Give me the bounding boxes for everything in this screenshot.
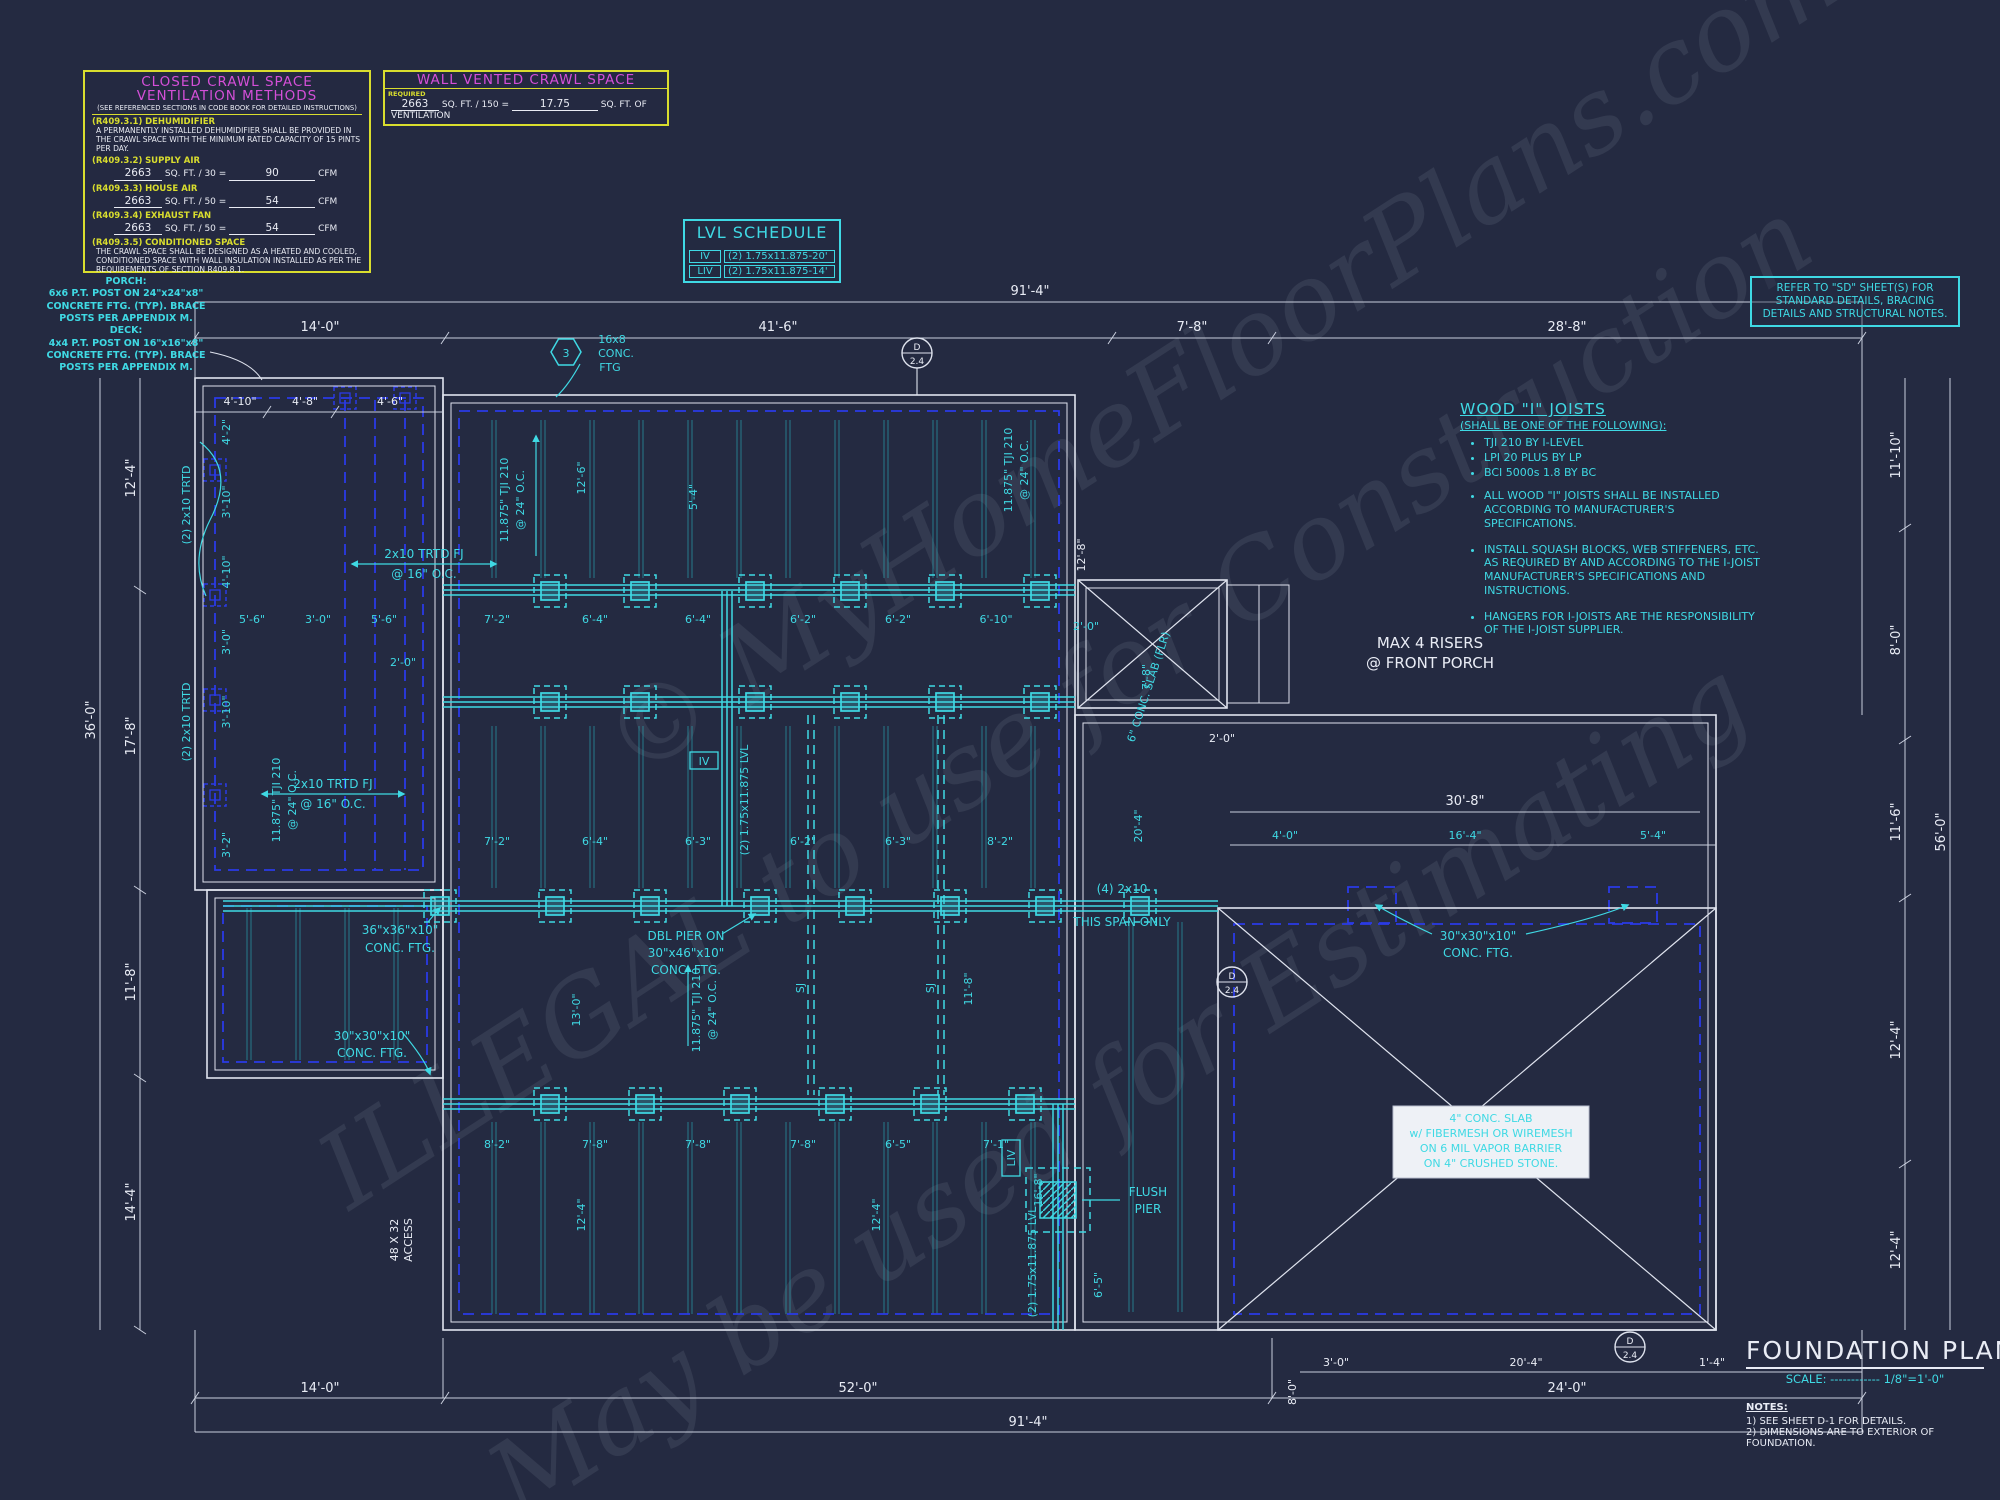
dim-right-4: 12'-4": [1889, 1020, 1904, 1059]
svg-text:2.4: 2.4: [1623, 1351, 1638, 1361]
deck-note-line: 4x4 P.T. POST ON 16"x16"x8": [28, 338, 224, 350]
dim-b1-6: 6'-10": [979, 613, 1012, 626]
lvl-desc: (2) 1.75x11.875-20': [724, 250, 835, 263]
dim-topleft-1: 4'-10": [223, 395, 256, 408]
porch-deck-notes: PORCH: 6x6 P.T. POST ON 24"x24"x8" CONCR…: [28, 276, 224, 375]
wood-joists-title: WOOD "I" JOISTS: [1460, 400, 1770, 419]
svg-text:CONC.: CONC.: [598, 347, 634, 360]
lvl-mark: IV: [689, 250, 721, 263]
dim-left-1: 12'-4": [124, 458, 139, 497]
hex-number: 3: [563, 347, 570, 360]
dim-right-5: 12'-4": [1889, 1230, 1904, 1269]
svg-text:@ 16" O.C.: @ 16" O.C.: [391, 567, 456, 581]
svg-text:2.4: 2.4: [910, 357, 925, 367]
dim-b3-2: 7'-8": [582, 1138, 608, 1151]
dim-bot-1: 14'-0": [300, 1381, 339, 1396]
svg-text:D: D: [1229, 972, 1236, 982]
sheet-notes: NOTES: 1) SEE SHEET D-1 FOR DETAILS. 2) …: [1746, 1402, 1984, 1449]
svg-text:30"x30"x10": 30"x30"x10": [1440, 929, 1517, 943]
svg-text:FTG: FTG: [599, 361, 620, 374]
dim-left-3: 11'-8": [124, 962, 139, 1001]
dim-b2-3: 6'-3": [685, 835, 711, 848]
dim-right-overall: 56'-0": [1934, 812, 1949, 851]
dim-v-4: 20'-4": [1132, 809, 1145, 842]
dim-v-6: 12'-4": [575, 1198, 588, 1231]
dim-left-overall: 36'-0": [84, 700, 99, 739]
crawl-box-header: CLOSED CRAWL SPACE VENTILATION METHODS (…: [92, 75, 362, 115]
footing-callout-3: 3 16x8 CONC. FTG: [551, 333, 634, 397]
sheet-note-2: 2) DIMENSIONS ARE TO EXTERIOR OF FOUNDAT…: [1746, 1427, 1984, 1449]
joist-option: LPI 20 PLUS BY LP: [1484, 451, 1770, 465]
wood-joists-general-notes: ALL WOOD "I" JOISTS SHALL BE INSTALLED A…: [1460, 489, 1770, 637]
garage-slab-note: 4" CONC. SLAB w/ FIBERMESH OR WIREMESH O…: [1393, 1106, 1589, 1178]
svg-text:2x10 TRTD FJ: 2x10 TRTD FJ: [293, 777, 372, 791]
closed-crawl-space-box: CLOSED CRAWL SPACE VENTILATION METHODS (…: [83, 70, 371, 273]
dim-topleft-2: 4'-8": [292, 395, 318, 408]
dim-2-0-a: 2'-0": [390, 656, 416, 669]
svg-text:30"x46"x10": 30"x46"x10": [648, 946, 725, 960]
vent-required-label: REQUIRED: [385, 89, 667, 98]
deck-note-title: DECK:: [28, 325, 224, 337]
dim-top-4: 28'-8": [1547, 320, 1586, 335]
svg-text:D: D: [914, 343, 921, 353]
dim-right-3: 11'-6": [1889, 802, 1904, 841]
crawl-section-1: (R409.3.1) DEHUMIDIFIER A PERMANENTLY IN…: [92, 117, 362, 154]
crawl-section-2: (R409.3.2) SUPPLY AIR 2663 SQ. FT. / 30 …: [92, 156, 362, 180]
lvl-row-2: LIV (2) 1.75x11.875-14': [689, 265, 835, 278]
porch-note-line: POSTS PER APPENDIX M.: [28, 313, 224, 325]
svg-text:36"x36"x10": 36"x36"x10": [362, 923, 439, 937]
svg-text:@ 24" O.C.: @ 24" O.C.: [286, 770, 299, 830]
svg-text:@ 24" O.C.: @ 24" O.C.: [706, 980, 719, 1040]
dim-leftin-6: 3'-2": [220, 832, 233, 858]
sheet-notes-title: NOTES:: [1746, 1402, 1984, 1413]
svg-text:16x8: 16x8: [598, 333, 626, 346]
dim-leftin-5: 3'-10": [220, 695, 233, 728]
crawl-title-1: CLOSED CRAWL SPACE: [92, 75, 362, 89]
svg-text:11.875" TJI 210: 11.875" TJI 210: [1002, 428, 1015, 513]
porch-note-line: 6x6 P.T. POST ON 24"x24"x8": [28, 288, 224, 300]
dim-rm-2: 4'-0": [1272, 829, 1298, 842]
joist-option: TJI 210 BY I-LEVEL: [1484, 436, 1770, 450]
sd-reference-note: REFER TO "SD" SHEET(S) FOR STANDARD DETA…: [1750, 276, 1960, 327]
svg-text:@ FRONT PORCH: @ FRONT PORCH: [1366, 654, 1494, 672]
svg-text:LIV: LIV: [1005, 1149, 1018, 1166]
dim-bot-3: 24'-0": [1547, 1381, 1586, 1396]
dim-2-0-c: 2'-0": [1209, 732, 1235, 745]
crawl-section-5: (R409.3.5) CONDITIONED SPACE THE CRAWL S…: [92, 238, 362, 275]
crawl-title-2: VENTILATION METHODS: [92, 89, 362, 103]
svg-text:CONC. FTG.: CONC. FTG.: [651, 963, 721, 977]
dim-b1-1: 7'-2": [484, 613, 510, 626]
ftg-30x30-right-label: 30"x30"x10" CONC. FTG.: [1376, 905, 1628, 960]
dim-b3-3: 7'-8": [685, 1138, 711, 1151]
svg-text:IV: IV: [699, 755, 710, 768]
svg-text:(4) 2x10: (4) 2x10: [1097, 882, 1148, 896]
svg-text:@ 24" O.C.: @ 24" O.C.: [1018, 440, 1031, 500]
svg-text:11.875" TJI 210: 11.875" TJI 210: [498, 458, 511, 543]
wood-i-joists-notes: WOOD "I" JOISTS (SHALL BE ONE OF THE FOL…: [1460, 400, 1770, 649]
dim-v-7: 12'-4": [870, 1198, 883, 1231]
svg-text:CONC. FTG.: CONC. FTG.: [365, 941, 435, 955]
sj-label-1: SJ: [794, 983, 807, 993]
dim-b2-5: 6'-3": [885, 835, 911, 848]
lvl-schedule-box: LVL SCHEDULE IV (2) 1.75x11.875-20' LIV …: [683, 219, 841, 283]
dim-right-2: 8'-0": [1889, 625, 1904, 656]
dim-top-overall: 91'-4": [1010, 284, 1049, 299]
dim-b1l-3: 5'-6": [371, 613, 397, 626]
trtd-vert-1: (2) 2x10 TRTD: [180, 466, 193, 545]
sheet-scale: SCALE: ------------ 1/8"=1'-0": [1746, 1372, 1984, 1386]
dim-botsm-2: 3'-0": [1323, 1356, 1349, 1369]
svg-text:THIS SPAN ONLY: THIS SPAN ONLY: [1072, 915, 1171, 929]
svg-text:ACCESS: ACCESS: [402, 1218, 415, 1262]
wall-vented-crawl-box: WALL VENTED CRAWL SPACE REQUIRED 2663 SQ…: [383, 70, 669, 126]
tji-label-3: 11.875" TJI 210 @ 24" O.C.: [270, 758, 299, 843]
dim-v-10: 6'-5": [1092, 1272, 1105, 1298]
svg-text:CONC. FTG.: CONC. FTG.: [337, 1046, 407, 1060]
svg-text:w/ FIBERMESH OR WIREMESH: w/ FIBERMESH OR WIREMESH: [1409, 1127, 1572, 1140]
crawl-access-label: 48 X 32 ACCESS: [388, 1218, 415, 1262]
dim-b1l-2: 3'-0": [305, 613, 331, 626]
deck-note-line: CONCRETE FTG. (TYP). BRACE: [28, 350, 224, 362]
dim-leftin-1: 4'-2": [220, 419, 233, 445]
tji-label-4: 11.875" TJI 210 @ 24" O.C.: [688, 966, 719, 1052]
dim-v-5: 13'-0": [570, 993, 583, 1026]
svg-text:4" CONC. SLAB: 4" CONC. SLAB: [1449, 1112, 1532, 1125]
dim-botsm-1: 8'-0": [1286, 1379, 1299, 1405]
dim-b1-5: 6'-2": [885, 613, 911, 626]
porch-note-title: PORCH:: [28, 276, 224, 288]
svg-text:@ 16" O.C.: @ 16" O.C.: [300, 797, 365, 811]
joist-note: INSTALL SQUASH BLOCKS, WEB STIFFENERS, E…: [1484, 543, 1770, 598]
vent-formula: 2663 SQ. FT. / 150 = 17.75 SQ. FT. OF VE…: [385, 98, 667, 123]
svg-text:D: D: [1627, 1337, 1634, 1347]
dim-b1-4: 6'-2": [790, 613, 816, 626]
dim-v-8: 16'-8": [1032, 1173, 1045, 1206]
dim-rm-3: 16'-4": [1448, 829, 1481, 842]
dim-rm-4: 5'-4": [1640, 829, 1666, 842]
dim-b3-5: 6'-5": [885, 1138, 911, 1151]
trtd-vert-2: (2) 2x10 TRTD: [180, 683, 193, 762]
svg-text:PIER: PIER: [1135, 1202, 1162, 1216]
detail-callout-bottom: D 2.4: [1615, 1332, 1645, 1362]
dim-rm-1: 30'-8": [1445, 794, 1484, 809]
dim-botsm-4: 1'-4": [1699, 1356, 1725, 1369]
dim-left-4: 14'-4": [124, 1182, 139, 1221]
dim-b3-4: 7'-8": [790, 1138, 816, 1151]
sheet-title: FOUNDATION PLAN: [1746, 1336, 1984, 1369]
sj-label-2: SJ: [924, 983, 937, 993]
joist-note: ALL WOOD "I" JOISTS SHALL BE INSTALLED A…: [1484, 489, 1770, 530]
dim-b2-1: 7'-2": [484, 835, 510, 848]
dim-b1l-1: 5'-6": [239, 613, 265, 626]
crawl-subtitle: (SEE REFERENCED SECTIONS IN CODE BOOK FO…: [92, 104, 362, 112]
porch-note-line: CONCRETE FTG. (TYP). BRACE: [28, 301, 224, 313]
dim-v-1: 12'-6": [575, 461, 588, 494]
deck-note-line: POSTS PER APPENDIX M.: [28, 362, 224, 374]
foundation-plan-sheet: © MyHomeFloorPlans.com ILLEGAL to use fo…: [0, 0, 2000, 1500]
dim-topleft-3: 4'-6": [377, 395, 403, 408]
detail-callout-top: D 2.4: [902, 338, 932, 395]
lvl-vert-text-1: (2) 1.75x11.875 LVL: [738, 744, 751, 856]
dim-leftin-2: 3'-10": [220, 485, 233, 518]
dim-b2-2: 6'-4": [582, 835, 608, 848]
wood-joists-options: TJI 210 BY I-LEVEL LPI 20 PLUS BY LP BCI…: [1460, 436, 1770, 479]
svg-text:48 X 32: 48 X 32: [388, 1219, 401, 1262]
dim-b1-2: 6'-4": [582, 613, 608, 626]
svg-text:30"x30"x10": 30"x30"x10": [334, 1029, 411, 1043]
dim-botsm-3: 20'-4": [1509, 1356, 1542, 1369]
dim-b2-6: 8'-2": [987, 835, 1013, 848]
dim-top-2: 41'-6": [758, 320, 797, 335]
crawl-section-3: (R409.3.3) HOUSE AIR 2663 SQ. FT. / 50 =…: [92, 184, 362, 208]
svg-text:2x10 TRTD FJ: 2x10 TRTD FJ: [384, 547, 463, 561]
dim-leftin-3: 4'-10": [220, 555, 233, 588]
lvl-row-1: IV (2) 1.75x11.875-20': [689, 250, 835, 263]
dim-bot-2: 52'-0": [838, 1381, 877, 1396]
dim-b1-3: 6'-4": [685, 613, 711, 626]
lvl-mark: LIV: [689, 265, 721, 278]
sheet-note-1: 1) SEE SHEET D-1 FOR DETAILS.: [1746, 1416, 1984, 1427]
dim-top-3: 7'-8": [1177, 320, 1208, 335]
lvl-vert-text-2: (2) 1.75x11.875 LVL: [1026, 1206, 1039, 1318]
wood-joists-subtitle: (SHALL BE ONE OF THE FOLLOWING):: [1460, 419, 1770, 433]
svg-text:DBL PIER ON: DBL PIER ON: [648, 929, 725, 943]
svg-text:ON 6 MIL VAPOR BARRIER: ON 6 MIL VAPOR BARRIER: [1420, 1142, 1563, 1155]
svg-text:11.875" TJI 210: 11.875" TJI 210: [690, 968, 703, 1053]
lvl-schedule-title: LVL SCHEDULE: [689, 223, 835, 242]
dim-bot-overall: 91'-4": [1008, 1415, 1047, 1430]
dim-leftin-4: 3'-0": [220, 629, 233, 655]
dim-2-0-b: 2'-0": [1073, 620, 1099, 633]
title-block: FOUNDATION PLAN SCALE: ------------ 1/8"…: [1746, 1336, 1984, 1449]
dim-b3-1: 8'-2": [484, 1138, 510, 1151]
svg-text:2.4: 2.4: [1225, 986, 1240, 996]
dim-b2-4: 6'-2": [790, 835, 816, 848]
dim-v-9: 11'-8": [962, 972, 975, 1005]
crawl-section-4: (R409.3.4) EXHAUST FAN 2663 SQ. FT. / 50…: [92, 211, 362, 235]
dim-right-1: 11'-10": [1889, 431, 1904, 478]
joist-note: HANGERS FOR I-JOISTS ARE THE RESPONSIBIL…: [1484, 610, 1770, 638]
dim-top-1: 14'-0": [300, 320, 339, 335]
svg-text:CONC. FTG.: CONC. FTG.: [1443, 946, 1513, 960]
svg-text:@ 24" O.C.: @ 24" O.C.: [514, 470, 527, 530]
vent-title: WALL VENTED CRAWL SPACE: [385, 72, 667, 89]
detail-callout-mid: D 2.4: [1217, 967, 1247, 997]
dbl-pier-label: DBL PIER ON 30"x46"x10" CONC. FTG.: [648, 914, 755, 977]
joist-option: BCI 5000s 1.8 BY BC: [1484, 466, 1770, 480]
dim-v-3: 12'-8": [1075, 538, 1088, 571]
left-wall-piers: [204, 387, 416, 806]
dim-left-2: 17'-8": [124, 716, 139, 755]
svg-text:11.875" TJI 210: 11.875" TJI 210: [270, 758, 283, 843]
fj-label-2: 2x10 TRTD FJ @ 16" O.C.: [262, 777, 404, 811]
dim-v-2: 5'-4": [687, 484, 700, 510]
lvl-desc: (2) 1.75x11.875-14': [724, 265, 835, 278]
svg-text:FLUSH: FLUSH: [1129, 1185, 1167, 1199]
svg-text:ON 4" CRUSHED STONE.: ON 4" CRUSHED STONE.: [1424, 1157, 1559, 1170]
